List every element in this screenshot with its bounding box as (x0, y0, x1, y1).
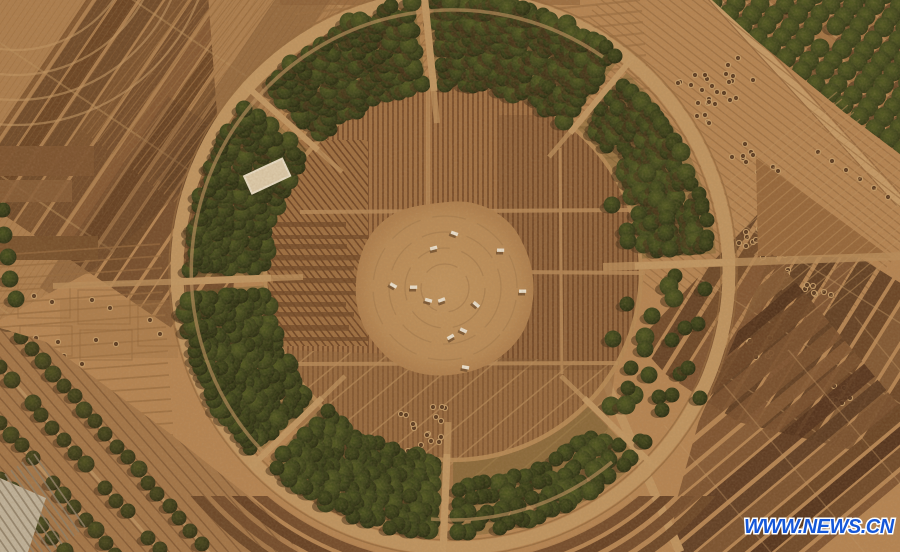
svg-text:WWW.NEWS.CN: WWW.NEWS.CN (744, 516, 895, 538)
